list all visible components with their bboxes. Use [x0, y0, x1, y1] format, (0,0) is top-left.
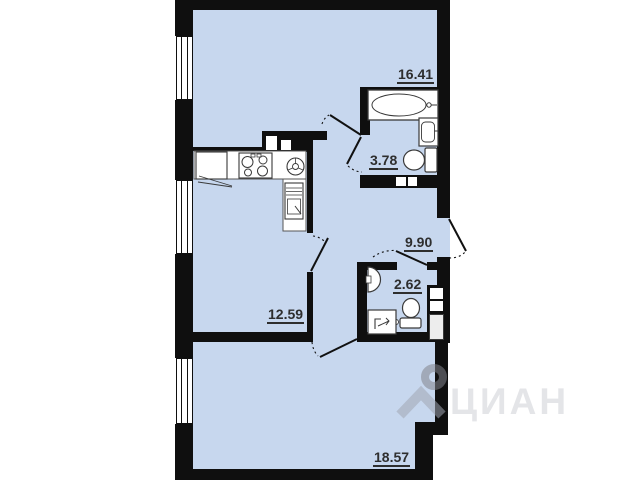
- area-label-living: 16.41: [397, 67, 434, 84]
- washing-machine: [368, 310, 396, 334]
- fridge: [196, 152, 232, 187]
- area-label-bathroom: 3.78: [369, 153, 398, 170]
- floor-plan: 16.41 3.78 9.90 2.62 12.59 18.57 ЦИАН: [0, 0, 640, 480]
- sink-bathroom: [419, 118, 438, 146]
- kitchen-sink: [287, 158, 304, 175]
- door-living: [322, 115, 361, 135]
- door-wc: [373, 250, 427, 265]
- door-bathroom: [347, 137, 362, 172]
- entrance-door: [449, 219, 466, 258]
- area-label-kitchen: 12.59: [267, 307, 304, 324]
- toilet-bathroom: [404, 148, 438, 172]
- corner-sink-wc: [366, 267, 380, 292]
- stove: [239, 153, 272, 178]
- watermark-text: ЦИАН: [450, 384, 569, 420]
- cian-pin-icon: [392, 360, 456, 424]
- kitchen-cabinet: [285, 183, 303, 219]
- area-label-hallway: 9.90: [404, 235, 433, 252]
- bathtub: [368, 90, 438, 120]
- toilet-wc: [394, 299, 422, 329]
- door-kitchen: [311, 236, 328, 271]
- area-label-wc: 2.62: [393, 277, 422, 294]
- door-bedroom: [312, 339, 357, 357]
- area-label-bedroom: 18.57: [373, 450, 410, 467]
